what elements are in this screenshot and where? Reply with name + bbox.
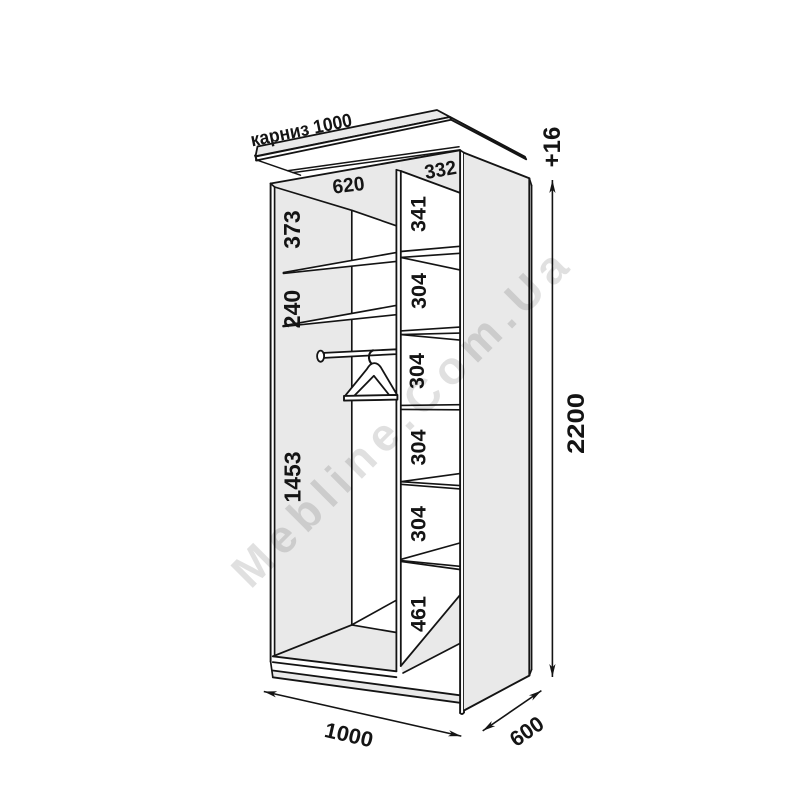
- svg-text:620: 620: [331, 173, 365, 199]
- svg-text:1000: 1000: [322, 718, 375, 752]
- svg-text:+16: +16: [539, 127, 566, 168]
- svg-text:600: 600: [505, 712, 548, 752]
- svg-text:373: 373: [279, 210, 305, 248]
- svg-text:304: 304: [407, 273, 431, 309]
- svg-text:2200: 2200: [563, 393, 590, 454]
- svg-text:240: 240: [279, 290, 305, 328]
- svg-text:461: 461: [407, 596, 431, 632]
- svg-text:304: 304: [407, 506, 431, 542]
- svg-text:341: 341: [407, 196, 431, 232]
